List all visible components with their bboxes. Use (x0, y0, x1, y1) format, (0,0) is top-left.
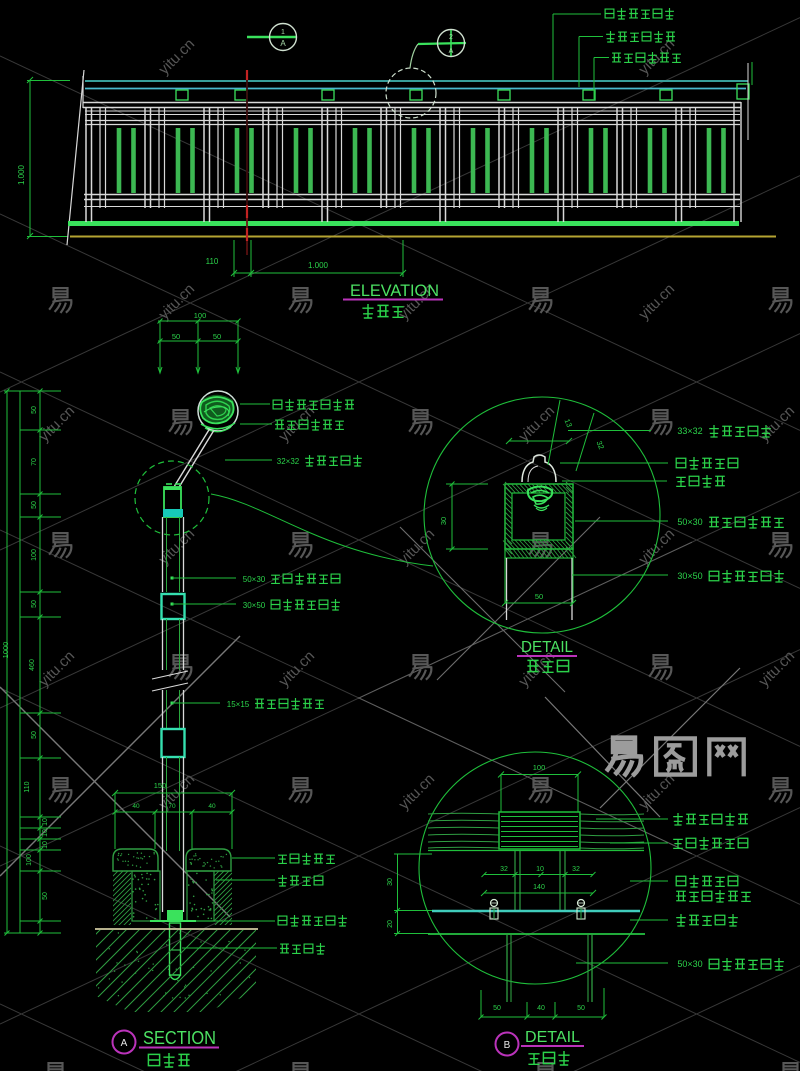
svg-text:110: 110 (24, 781, 31, 792)
svg-text:ELEVATION: ELEVATION (350, 281, 439, 300)
svg-text:1.000: 1.000 (308, 261, 329, 270)
svg-text:70: 70 (31, 458, 38, 466)
svg-text:150: 150 (154, 781, 167, 790)
svg-text:50×30: 50×30 (243, 575, 266, 584)
svg-text:140: 140 (533, 884, 545, 891)
svg-text:10: 10 (42, 818, 49, 826)
svg-text:10: 10 (536, 866, 544, 873)
svg-text:50: 50 (42, 892, 49, 900)
svg-text:10: 10 (42, 829, 49, 837)
svg-text:50×30: 50×30 (677, 517, 702, 527)
svg-text:100: 100 (26, 854, 33, 866)
svg-text:50: 50 (213, 332, 221, 341)
svg-text:50: 50 (577, 1005, 585, 1012)
svg-text:50: 50 (31, 731, 38, 739)
svg-text:70: 70 (168, 803, 176, 810)
svg-text:10: 10 (42, 841, 49, 849)
svg-text:30: 30 (387, 878, 394, 886)
svg-text:40: 40 (537, 1005, 545, 1012)
svg-text:100: 100 (533, 763, 546, 772)
svg-text:100: 100 (31, 549, 38, 561)
svg-text:110: 110 (206, 257, 219, 266)
svg-text:A: A (121, 1038, 128, 1049)
svg-text:460: 460 (29, 659, 36, 671)
svg-text:1000: 1000 (1, 642, 10, 659)
svg-text:50×30: 50×30 (677, 959, 702, 969)
svg-text:20: 20 (387, 920, 394, 928)
svg-text:50: 50 (172, 332, 180, 341)
svg-text:15×15: 15×15 (227, 700, 250, 709)
svg-text:40: 40 (208, 803, 216, 810)
svg-text:32×32: 32×32 (277, 457, 300, 466)
svg-text:50: 50 (31, 600, 38, 608)
svg-text:33×32: 33×32 (677, 426, 702, 436)
svg-text:B: B (504, 1040, 511, 1051)
svg-text:DETAIL: DETAIL (521, 639, 573, 656)
svg-text:50: 50 (535, 592, 543, 601)
svg-text:1: 1 (281, 29, 285, 36)
svg-text:DETAIL: DETAIL (525, 1029, 580, 1046)
svg-text:32: 32 (500, 866, 508, 873)
svg-text:50: 50 (493, 1005, 501, 1012)
svg-text:32: 32 (572, 866, 580, 873)
svg-text:A: A (449, 48, 454, 55)
svg-text:50: 50 (31, 406, 38, 414)
svg-text:2: 2 (449, 34, 453, 41)
svg-text:1.000: 1.000 (17, 164, 26, 185)
svg-text:50: 50 (31, 501, 38, 509)
svg-text:40: 40 (132, 803, 140, 810)
svg-text:30×50: 30×50 (243, 601, 266, 610)
svg-text:30: 30 (439, 517, 448, 525)
svg-text:30×50: 30×50 (677, 571, 702, 581)
svg-text:A: A (280, 39, 286, 48)
svg-text:SECTION: SECTION (143, 1028, 216, 1048)
